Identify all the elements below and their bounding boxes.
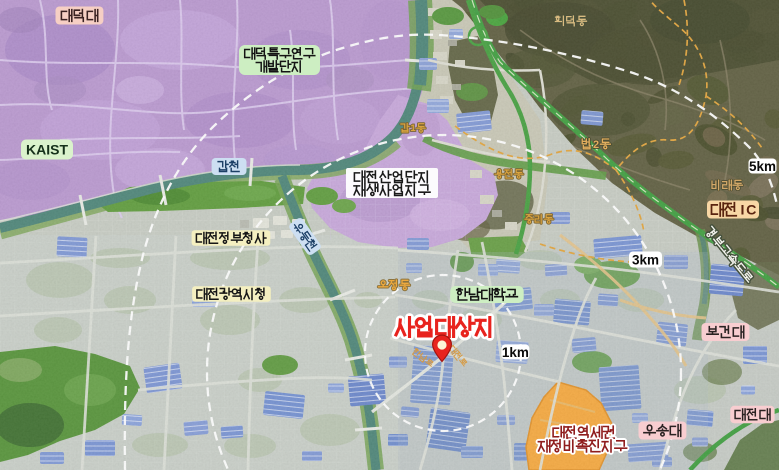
svg-text:1km: 1km	[502, 345, 529, 360]
svg-text:2: 2	[593, 139, 599, 151]
svg-text:I: I	[741, 202, 745, 218]
svg-text:5km: 5km	[749, 159, 776, 174]
svg-text:C: C	[746, 202, 756, 218]
svg-text:3km: 3km	[632, 252, 659, 267]
svg-text:1: 1	[410, 123, 416, 134]
svg-text:KAIST: KAIST	[26, 142, 68, 158]
